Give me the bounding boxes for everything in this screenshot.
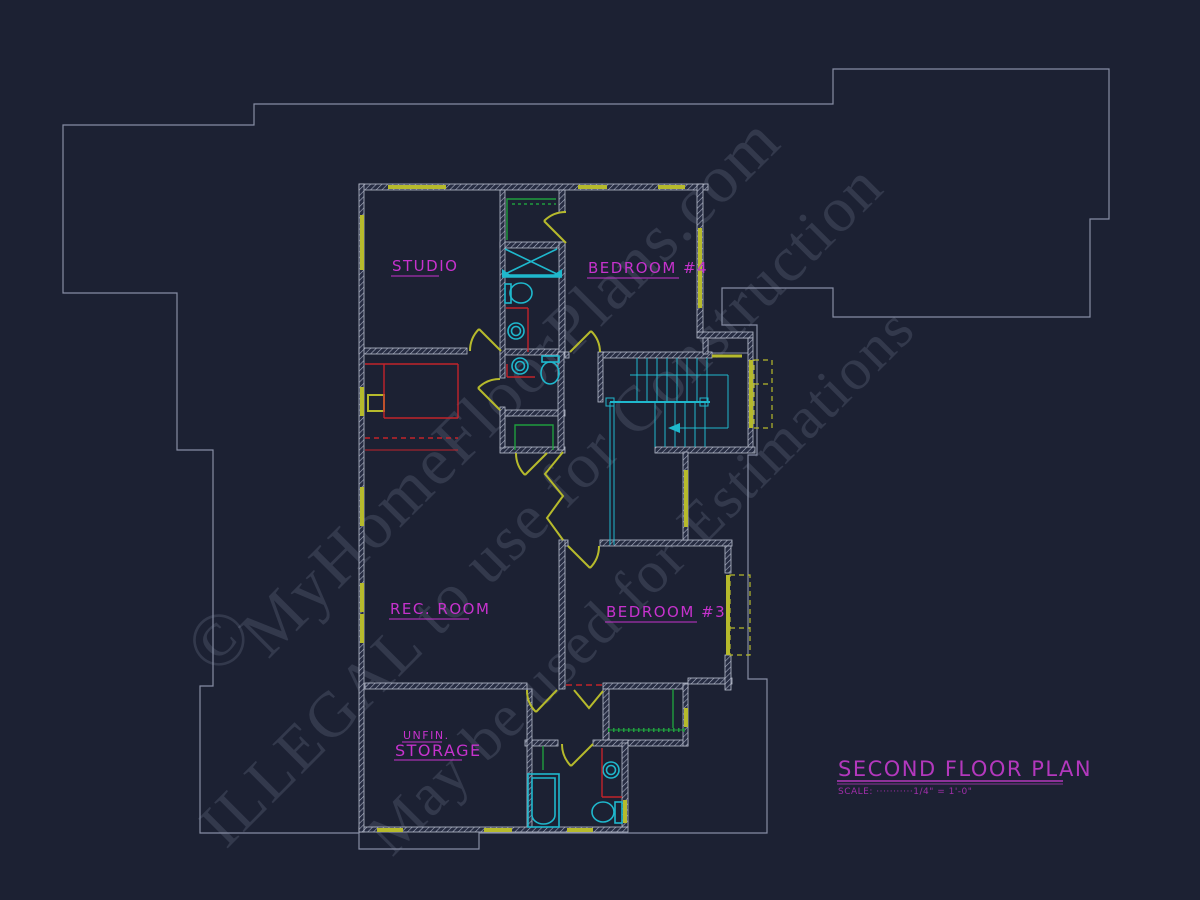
window-icon <box>484 828 512 832</box>
drawing-scale: SCALE: ···········1/4" = 1'-0" <box>838 787 972 797</box>
window-icon <box>388 185 446 189</box>
bay-window-icon <box>749 360 753 428</box>
window-icon <box>360 487 364 526</box>
room-label-rec-room: REC. ROOM <box>390 600 490 618</box>
floor-plan-canvas: © MyHomeFloorPlans.com ILLEGAL to use fo… <box>0 0 1200 900</box>
room-label-bedroom4: BEDROOM #4 <box>588 259 708 277</box>
room-label-bedroom3: BEDROOM #3 <box>606 603 726 621</box>
room-label-studio: STUDIO <box>392 257 458 275</box>
window-icon <box>684 708 688 727</box>
room-label-storage-line2: STORAGE <box>395 741 482 760</box>
cad-drawing-viewport: © MyHomeFloorPlans.com ILLEGAL to use fo… <box>0 0 1200 900</box>
window-icon <box>377 828 403 832</box>
window-icon <box>360 583 364 612</box>
window-icon <box>578 185 607 189</box>
window-icon <box>360 215 364 270</box>
window-icon <box>360 614 364 643</box>
window-icon <box>684 470 688 527</box>
drawing-title: SECOND FLOOR PLAN <box>838 757 1092 781</box>
bay-window-icon <box>726 575 730 655</box>
window-icon <box>567 828 593 832</box>
window-icon <box>623 800 627 823</box>
window-icon <box>360 387 364 416</box>
window-icon <box>658 185 685 189</box>
